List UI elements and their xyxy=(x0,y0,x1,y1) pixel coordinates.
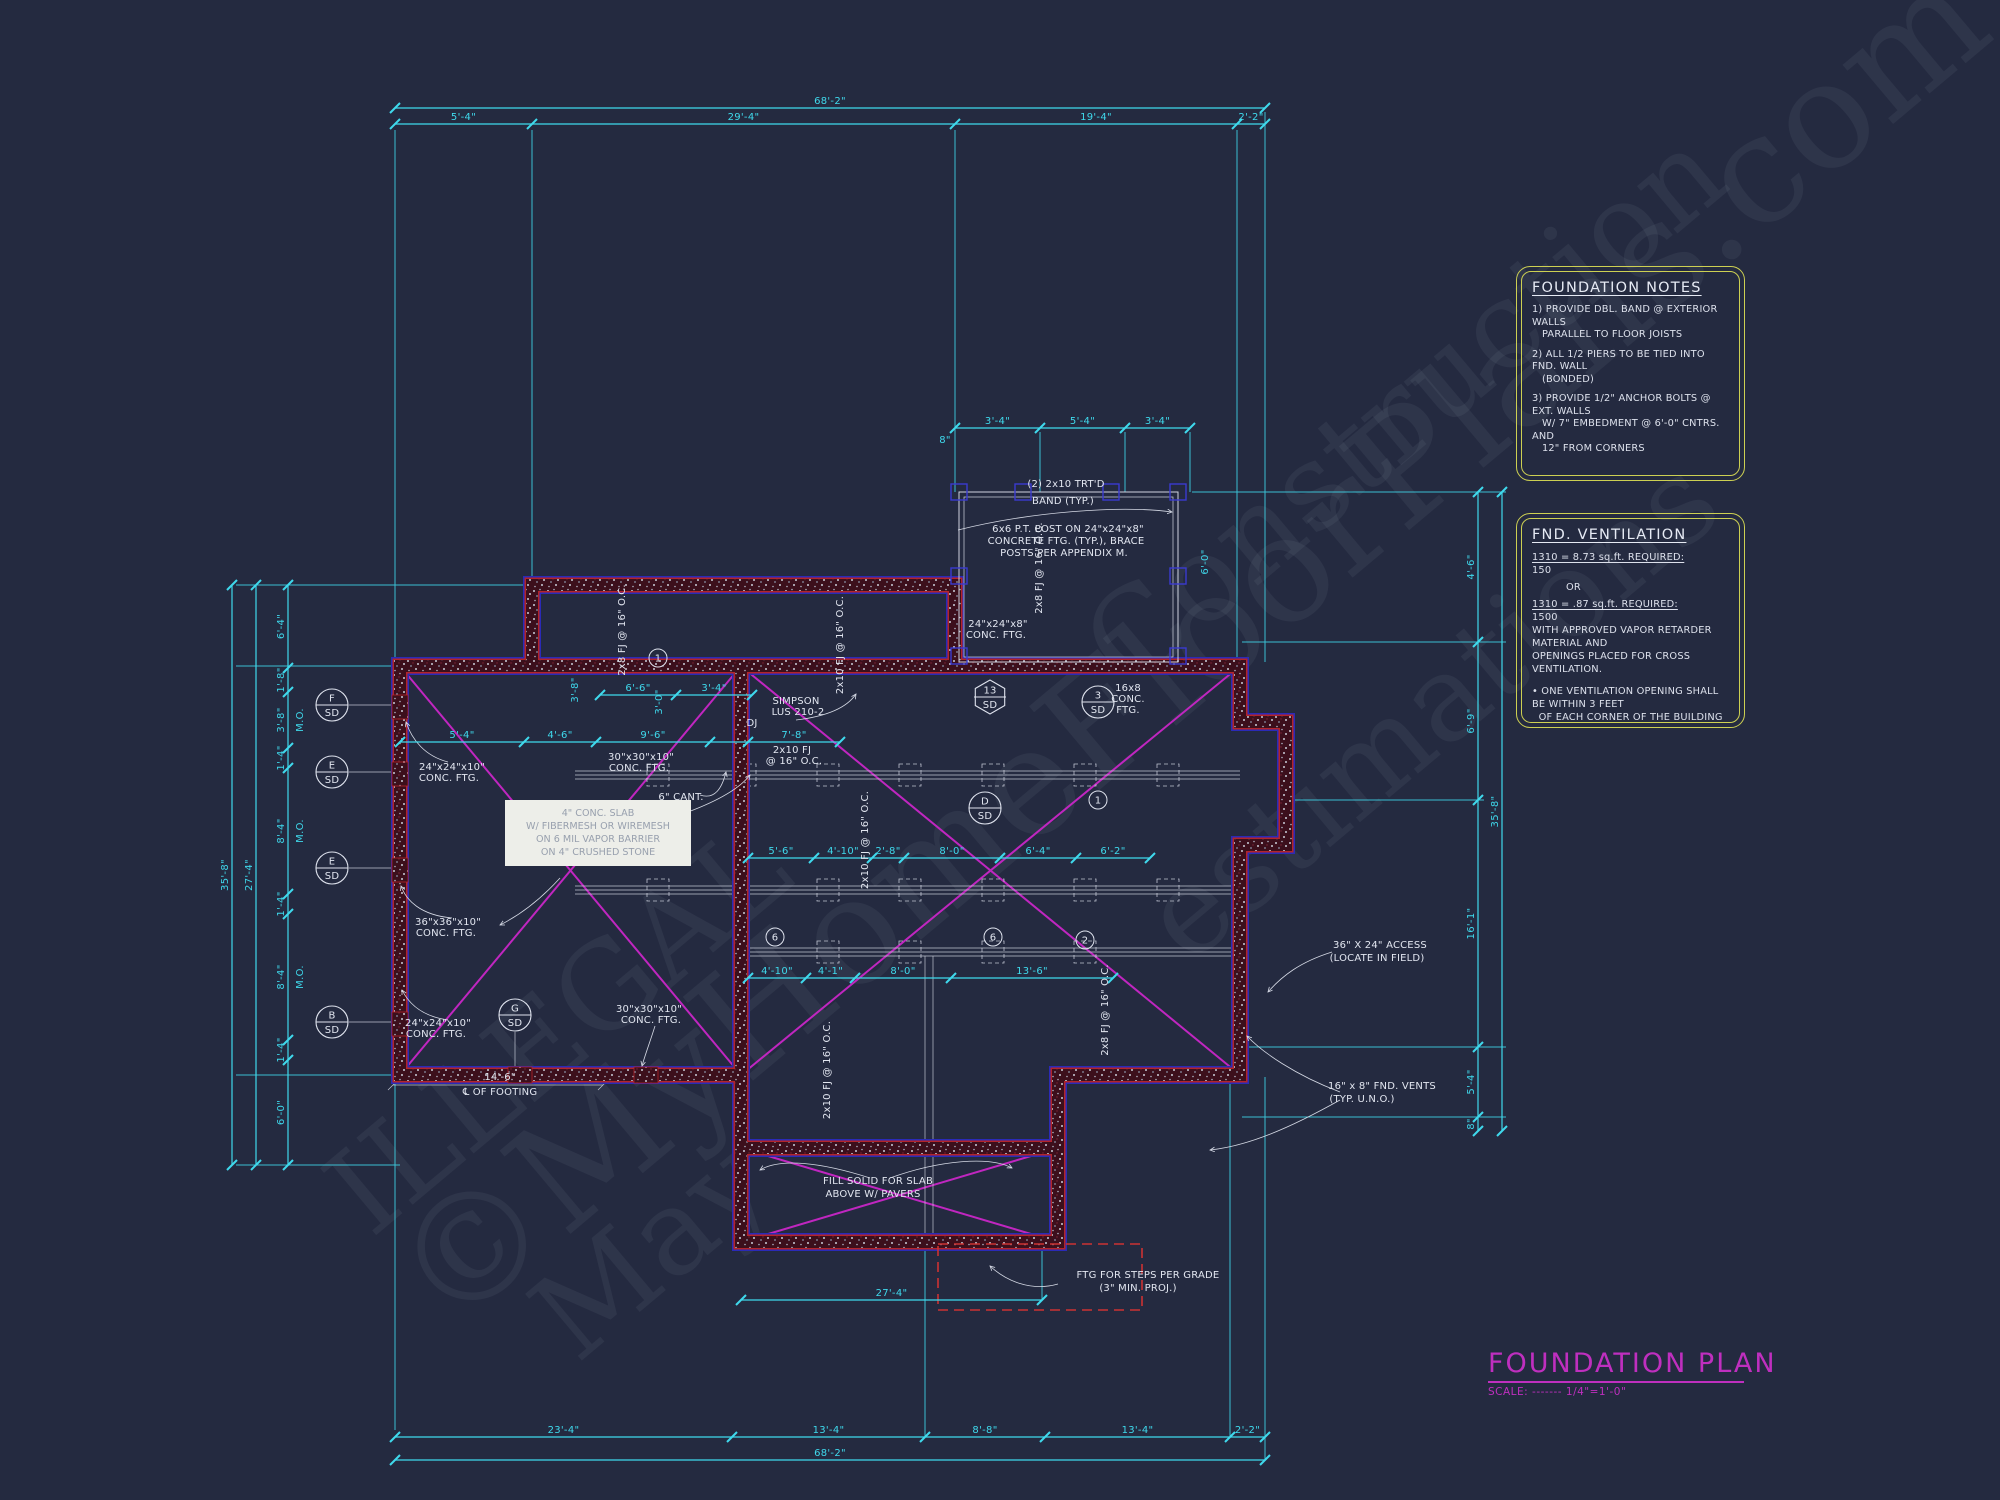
dim-label: 8'-8" xyxy=(972,1425,997,1436)
fnd-ventilation-box: FND. VENTILATION 1310 = 8.73 sq.ft. REQU… xyxy=(1516,513,1745,728)
dim-chain: 6'-4"1'-8"3'-8"1'-4"8'-4"1'-4"8'-4"1'-4"… xyxy=(276,580,293,1170)
dim-label: 3'-4" xyxy=(701,683,726,694)
dim-label: 5'-4" xyxy=(449,730,474,741)
dim-label: 2'-2" xyxy=(1235,1425,1260,1436)
dim-label: 35'-8" xyxy=(220,859,231,891)
dim-chain: 27'-4" xyxy=(736,1288,1047,1305)
annotation-label: ℄ OF FOOTING xyxy=(462,1087,538,1098)
keyed-note-bubble: 6 xyxy=(766,928,784,946)
dim-label: 19'-4" xyxy=(1080,112,1112,123)
vent-req2: 1310 = .87 sq.ft. REQUIRED: xyxy=(1532,598,1729,611)
dimension-layer: 68'-2"5'-4"29'-4"19'-4"2'-2"23'-4"13'-4"… xyxy=(220,96,1507,1465)
annotation-layer: (2) 2x10 TRT'DBAND (TYP.)6x6 P.T. POST O… xyxy=(405,479,1436,1294)
pier-mark: ESD xyxy=(316,852,348,884)
dim-chain: 68'-2" xyxy=(390,1448,1270,1465)
vent-bullet: • ONE VENTILATION OPENING SHALL BE WITHI… xyxy=(1532,685,1729,724)
dim-label: 8" xyxy=(939,435,951,446)
dim-label: 1'-4" xyxy=(276,1037,287,1062)
annotation-label: 16x8 xyxy=(1115,683,1141,694)
pier-mark: ESD xyxy=(316,756,348,788)
leader-lines xyxy=(401,509,1340,1286)
annotation-label: 16" x 8" FND. VENTS xyxy=(1328,1081,1436,1092)
slab-note: 4" CONC. SLAB W/ FIBERMESH OR WIREMESH O… xyxy=(505,800,691,866)
annotation-label: (2) 2x10 TRT'D xyxy=(1027,479,1104,490)
pier-mark-sheet: SD xyxy=(1091,705,1106,716)
annotation-label: 2x8 FJ @ 16" O.C. xyxy=(1100,964,1111,1056)
dim-label: 35'-8" xyxy=(1490,796,1501,828)
annotation-label: 2x10 FJ @ 16" O.C. xyxy=(835,596,846,694)
annotation-label: CONC. FTG. xyxy=(406,1029,466,1040)
dim-label: 6'-2" xyxy=(1100,846,1125,857)
dim-label: 3'-0" xyxy=(654,689,665,714)
dim-label: 68'-2" xyxy=(814,1448,846,1459)
bubble-number: 2 xyxy=(1082,936,1089,947)
annotation-label: 30"x30"x10" xyxy=(608,752,674,763)
title-block: FOUNDATION PLAN SCALE: ------- 1/4"=1'-0… xyxy=(1488,1348,1744,1398)
pier-mark-sheet: SD xyxy=(508,1018,523,1029)
dim-chain: 68'-2" xyxy=(390,96,1270,113)
bubble-number: 1 xyxy=(1095,796,1102,807)
dim-label: 27'-4" xyxy=(244,859,255,891)
dim-label: 8'-0" xyxy=(939,846,964,857)
extension-lines xyxy=(236,112,1506,1460)
dim-label: 27'-4" xyxy=(876,1288,908,1299)
dim-label: 6'-4" xyxy=(1025,846,1050,857)
dim-label: 4'-10" xyxy=(761,966,793,977)
annotation-label: 36"x36"x10" xyxy=(415,917,481,928)
annotation-label: FTG. xyxy=(1116,705,1139,716)
vent-req1: 1310 = 8.73 sq.ft. REQUIRED: xyxy=(1532,551,1729,564)
pier-mark-sheet: SD xyxy=(325,775,340,786)
dim-label: 68'-2" xyxy=(814,96,846,107)
annotation-label: CONC. FTG. xyxy=(416,928,476,939)
vent-req1-denominator: 150 xyxy=(1532,564,1729,577)
dim-chain: 4'-6"6'-9"16'-1"5'-4"8" xyxy=(1466,487,1483,1136)
foundation-note-3: 3) PROVIDE 1/2" ANCHOR BOLTS @ EXT. WALL… xyxy=(1532,393,1729,456)
annotation-label: (TYP. U.N.O.) xyxy=(1329,1094,1394,1105)
annotation-label: LUS 210-2 xyxy=(772,707,825,718)
sheet-scale: SCALE: ------- 1/4"=1'-0" xyxy=(1488,1386,1744,1398)
dim-chain: 35'-8" xyxy=(220,580,237,1170)
annotation-label: 24"x24"x8" xyxy=(968,619,1027,630)
dim-label: 6'-0" xyxy=(1200,549,1211,574)
pier-mark-sheet: SD xyxy=(978,811,993,822)
annotation-label: 24"x24"x10" xyxy=(419,762,485,773)
annotation-label: BAND (TYP.) xyxy=(1032,496,1094,507)
pier-mark: DSD xyxy=(969,792,1001,824)
dim-label: 8" xyxy=(1466,1118,1477,1130)
bubble-number: 6 xyxy=(990,933,997,944)
annotation-label: POSTS PER APPENDIX M. xyxy=(1000,548,1128,559)
dim-label: M.O. xyxy=(295,965,306,989)
pier-mark: 13SD xyxy=(974,680,1006,714)
dim-label: 9'-6" xyxy=(640,730,665,741)
pier-mark-letter: G xyxy=(511,1004,519,1015)
annotation-label: (LOCATE IN FIELD) xyxy=(1330,953,1425,964)
pier-mark-letter: E xyxy=(329,761,336,772)
annotation-label: FILL SOLID FOR SLAB xyxy=(823,1176,933,1187)
annotation-label: ABOVE W/ PAVERS xyxy=(825,1189,920,1200)
dim-label: 8'-4" xyxy=(276,964,287,989)
dim-label: 23'-4" xyxy=(548,1425,580,1436)
slab-note-line: ON 6 MIL VAPOR BARRIER xyxy=(507,833,689,846)
pier-mark-letter: 13 xyxy=(983,686,996,697)
pier-mark-sheet: SD xyxy=(983,700,998,711)
dim-label: 8'-4" xyxy=(276,818,287,843)
annotation-label: DJ xyxy=(746,718,757,729)
foundation-note-2: 2) ALL 1/2 PIERS TO BE TIED INTO FND. WA… xyxy=(1532,349,1729,387)
dim-label: 1'-4" xyxy=(276,891,287,916)
dim-label: 5'-4" xyxy=(1466,1069,1477,1094)
pier-mark-letter: E xyxy=(329,857,336,868)
dim-label: 4'-1" xyxy=(818,966,843,977)
slab-note-line: ON 4" CRUSHED STONE xyxy=(507,846,689,859)
dim-label: 4'-6" xyxy=(1466,554,1477,579)
dim-label: 7'-8" xyxy=(781,730,806,741)
pier-mark-letter: B xyxy=(328,1011,335,1022)
slab-note-line: 4" CONC. SLAB xyxy=(507,807,689,820)
dim-chain: 5'-4"29'-4"19'-4"2'-2" xyxy=(390,112,1270,129)
dim-label: M.O. xyxy=(295,708,306,732)
pier-mark-letter: D xyxy=(981,797,989,808)
annotation-label: 2x10 FJ @ 16" O.C. xyxy=(822,1021,833,1119)
sheet-title: FOUNDATION PLAN xyxy=(1488,1348,1744,1383)
dim-label: 3'-4" xyxy=(1145,416,1170,427)
annotation-label: CONC. FTG. xyxy=(966,630,1026,641)
dim-label: 3'-8" xyxy=(276,707,287,732)
annotation-label: 6x6 P.T. POST ON 24"x24"x8" xyxy=(992,524,1144,535)
annotation-label: 2x8 FJ @ 16" O.C. xyxy=(1034,522,1045,614)
dim-label: 3'-4" xyxy=(985,416,1010,427)
foundation-plan-sheet: ©MyHomeFloorPlans.comConstructionestimat… xyxy=(0,0,2000,1500)
pier-mark-sheet: SD xyxy=(325,708,340,719)
annotation-label: CONC. xyxy=(1111,694,1145,705)
annotation-label: @ 16" O.C. xyxy=(766,756,823,767)
foundation-note-1: 1) PROVIDE DBL. BAND @ EXTERIOR WALLS PA… xyxy=(1532,304,1729,342)
annotation-label: 2x8 FJ @ 16" O.C. xyxy=(617,584,628,676)
bubble-number: 1 xyxy=(655,654,662,665)
dim-label: 6'-9" xyxy=(1466,708,1477,733)
dim-label: M.O. xyxy=(295,819,306,843)
pier-mark: FSD xyxy=(316,689,348,721)
pier-mark-sheet: SD xyxy=(325,1025,340,1036)
fnd-ventilation-title: FND. VENTILATION xyxy=(1532,527,1729,543)
dim-label: 13'-6" xyxy=(1016,966,1048,977)
dim-chain: 27'-4" xyxy=(244,580,261,1170)
dim-label: 16'-1" xyxy=(1466,908,1477,940)
dim-label: 2'-2" xyxy=(1238,112,1263,123)
dim-chain: 5'-6"4'-10"2'-8"8'-0"6'-4"6'-2" xyxy=(743,846,1155,863)
dim-label: 5'-6" xyxy=(768,846,793,857)
dim-label: 6'-0" xyxy=(276,1100,287,1125)
dim-label: 3'-8" xyxy=(570,677,581,702)
foundation-plan-drawing: 68'-2"5'-4"29'-4"19'-4"2'-2"23'-4"13'-4"… xyxy=(0,0,2000,1500)
annotation-label: 36" X 24" ACCESS xyxy=(1333,940,1427,951)
dim-label: 8'-0" xyxy=(890,966,915,977)
dim-label: 4'-6" xyxy=(547,730,572,741)
dim-chain: 23'-4"13'-4"8'-8"13'-4"2'-2" xyxy=(390,1425,1270,1442)
annotation-label: SIMPSON xyxy=(772,696,819,707)
dim-label: 4'-10" xyxy=(827,846,859,857)
annotation-label: (3" MIN. PROJ.) xyxy=(1099,1283,1176,1294)
annotation-label: CONC. FTG. xyxy=(621,1015,681,1026)
dim-chain: 35'-8" xyxy=(1490,487,1507,1136)
dim-chain: 4'-10"4'-1"8'-0"13'-6" xyxy=(743,966,1118,983)
dim-label: 5'-4" xyxy=(1070,416,1095,427)
annotation-label: 14'-6" xyxy=(484,1072,515,1083)
annotation-label: CONC. FTG. xyxy=(419,773,479,784)
dim-label: 13'-4" xyxy=(1122,1425,1154,1436)
foundation-notes-title: FOUNDATION NOTES xyxy=(1532,280,1729,296)
vent-body: WITH APPROVED VAPOR RETARDER MATERIAL AN… xyxy=(1532,624,1729,676)
annotation-label: 24"x24"x10" xyxy=(405,1018,471,1029)
dim-label: 29'-4" xyxy=(728,112,760,123)
pier-mark: BSD xyxy=(316,1006,348,1038)
keyed-note-bubble: 1 xyxy=(1089,791,1107,809)
dim-label: 6'-6" xyxy=(625,683,650,694)
annotation-label: CONCRETE FTG. (TYP.), BRACE xyxy=(988,536,1145,547)
pier-mark: GSD xyxy=(499,999,531,1031)
vent-req2-denominator: 1500 xyxy=(1532,611,1729,624)
vent-or: OR xyxy=(1566,581,1729,594)
slab-note-line: W/ FIBERMESH OR WIREMESH xyxy=(507,820,689,833)
annotation-label: 30"x30"x10" xyxy=(616,1004,682,1015)
bubble-number: 6 xyxy=(772,933,779,944)
keyed-note-bubble: 2 xyxy=(1076,931,1094,949)
dim-label: 6'-4" xyxy=(276,614,287,639)
dim-label: 1'-4" xyxy=(276,745,287,770)
foundation-notes-box: FOUNDATION NOTES 1) PROVIDE DBL. BAND @ … xyxy=(1516,266,1745,481)
annotation-label: FTG FOR STEPS PER GRADE xyxy=(1077,1270,1220,1281)
keyed-note-bubble: 6 xyxy=(984,928,1002,946)
pier-mark-letter: F xyxy=(329,694,335,705)
annotation-label: 2x10 FJ xyxy=(773,745,811,756)
pier-mark-sheet: SD xyxy=(325,871,340,882)
annotation-label: CONC. FTG. xyxy=(609,763,669,774)
dim-label: 5'-4" xyxy=(451,112,476,123)
pier-mark: 3SD xyxy=(1082,686,1114,718)
dim-label: 2'-8" xyxy=(875,846,900,857)
annotation-label: 2x10 FJ @ 16" O.C. xyxy=(860,791,871,889)
dim-label: 1'-8" xyxy=(276,667,287,692)
dim-chain: 3'-4"5'-4"3'-4" xyxy=(950,416,1195,433)
dim-label: 13'-4" xyxy=(813,1425,845,1436)
pier-mark-letter: 3 xyxy=(1095,691,1102,702)
